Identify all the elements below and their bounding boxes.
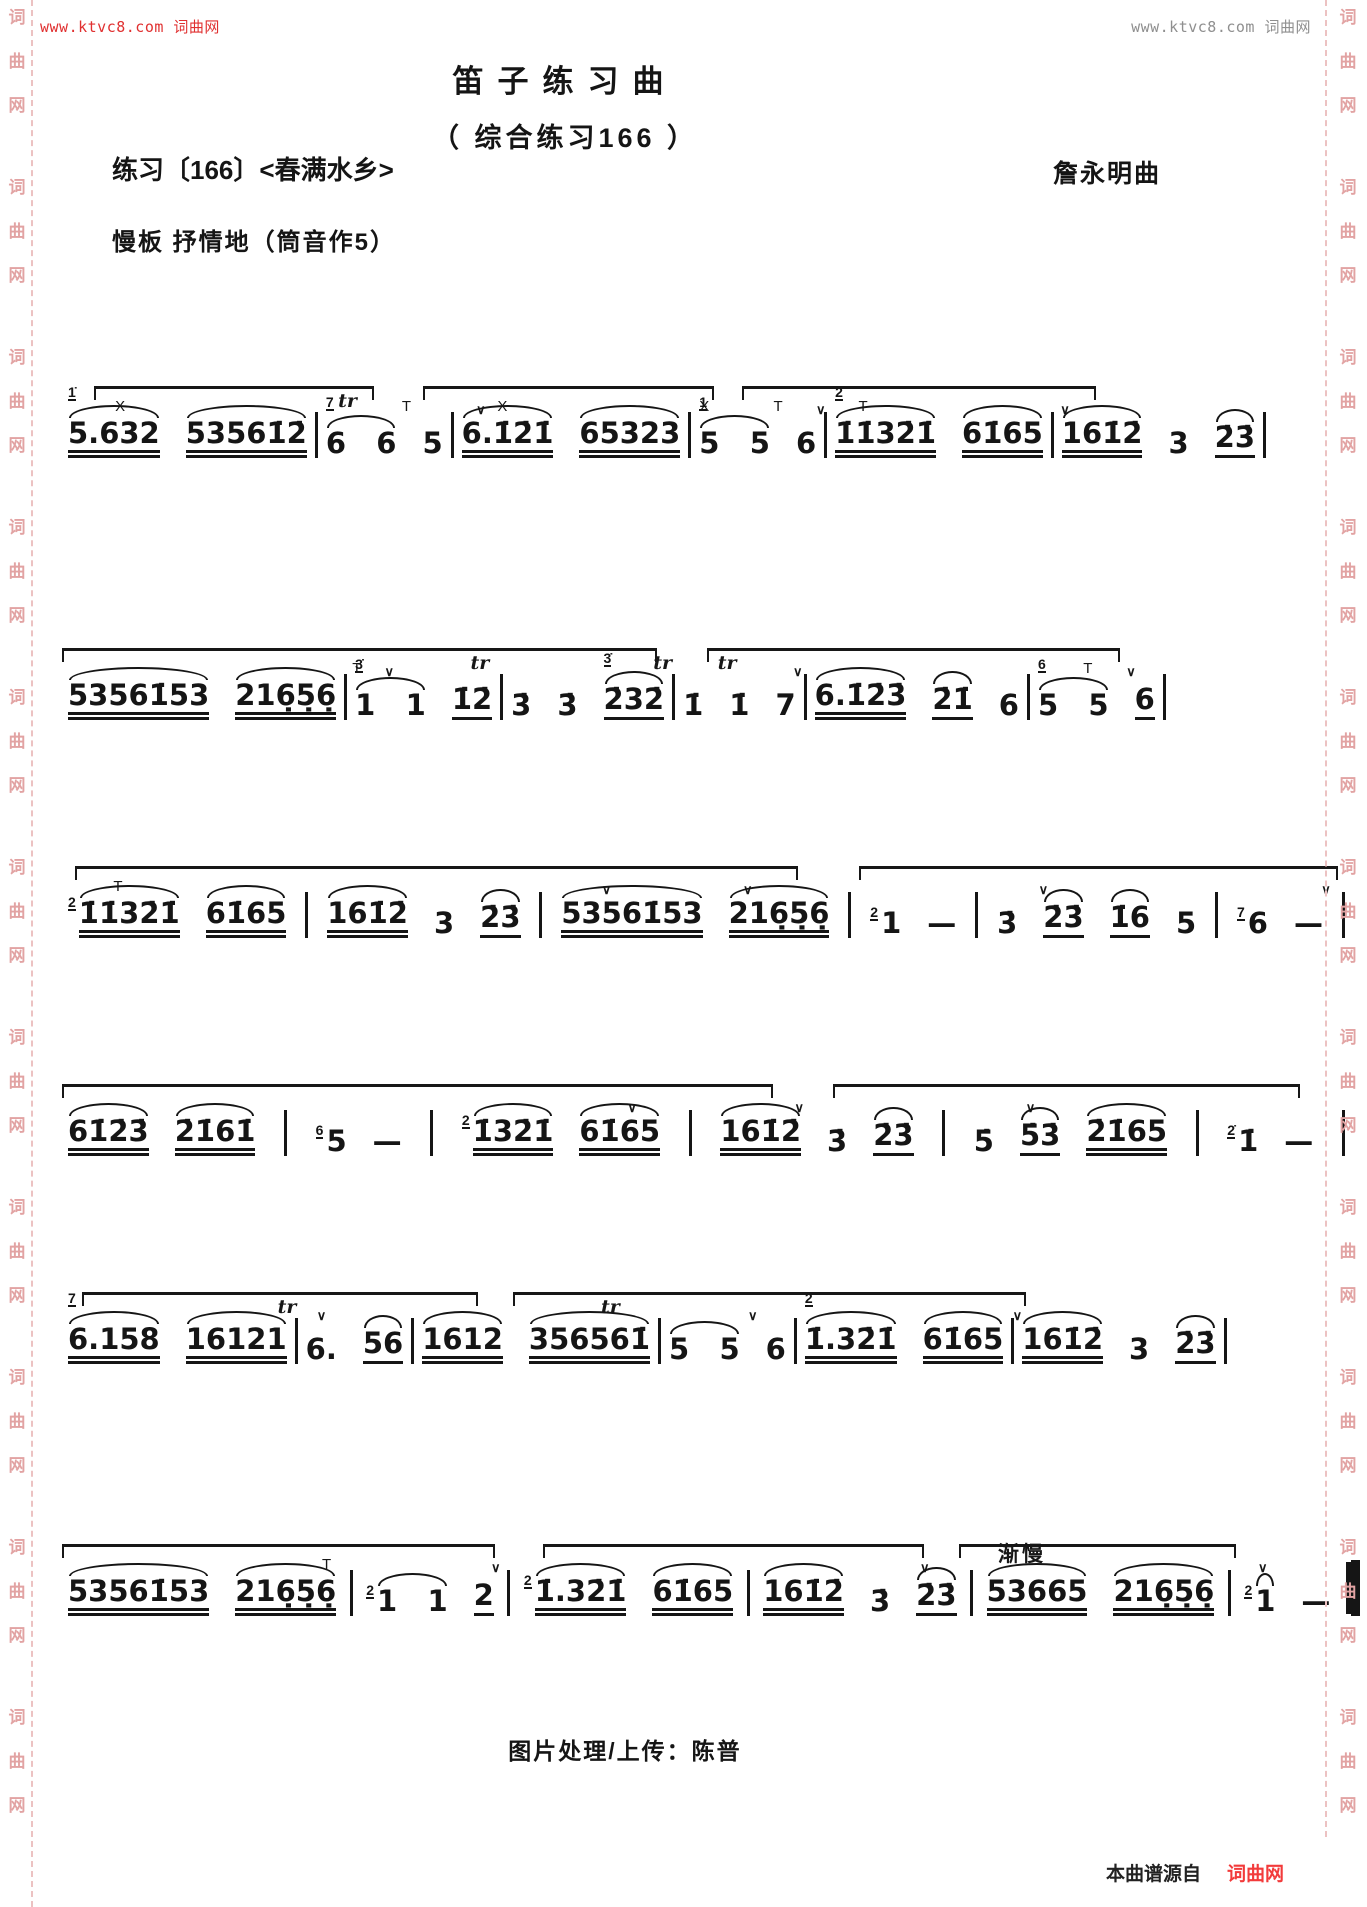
note-digits: 5.632	[68, 418, 160, 458]
phrase-line	[423, 386, 714, 400]
watermark-group: 词曲网	[9, 1526, 26, 1658]
note-digits: 6.1̇2̇1̇	[462, 418, 554, 458]
phrase-line	[62, 1084, 773, 1098]
note-digits: 2̇3̇	[1215, 422, 1255, 458]
note-digits: 2̇3̇	[916, 1580, 956, 1616]
measure: 65 56	[1032, 672, 1161, 720]
watermark-char: 曲	[1340, 210, 1357, 254]
note-group: 161̇2̇	[1062, 418, 1143, 458]
watermark-char: 词	[9, 0, 26, 40]
watermark-group: 词曲网	[9, 1356, 26, 1488]
note-group: 1̇5.632	[68, 400, 160, 458]
barline	[305, 892, 308, 938]
note-group: 2̇1̇	[932, 684, 972, 720]
note-group: 3̇	[557, 690, 577, 720]
note-group: —	[927, 908, 956, 938]
grace-note: 2	[462, 1113, 470, 1129]
note-digits: 6 6	[326, 428, 397, 458]
watermark-group: 词曲网	[1340, 506, 1357, 638]
note-digits: 1̇1̇32̇1̇	[79, 898, 180, 938]
note-group: 61̇65	[652, 1576, 733, 1616]
score-line: T∨∨渐慢∨53561̇53216̣5̣6̣21 1221̇.32̇1̇61̇6…	[62, 1536, 1362, 1616]
note-group: 216̣5̣6̣	[1113, 1576, 1214, 1616]
watermark-char: 网	[9, 1104, 26, 1148]
note-digits: 3̇	[997, 908, 1017, 938]
watermark-char: 词	[9, 676, 26, 720]
note-digits: 1̇.32̇1̇	[535, 1576, 627, 1616]
note-group: 161̇2̇	[1022, 1324, 1103, 1364]
note-group: 1̇6	[1110, 902, 1150, 938]
grace-note: 1̇	[68, 385, 76, 401]
watermark-char: 曲	[9, 40, 26, 84]
note-group: 1̇	[729, 690, 749, 720]
note-digits: 5	[422, 428, 442, 458]
measure: 1̇5.63253561̇2̇	[62, 400, 313, 458]
note-group: 21	[870, 908, 901, 938]
note-group: 3̇	[870, 1586, 890, 1616]
barline	[672, 674, 675, 720]
watermark-group: 词曲网	[1340, 676, 1357, 808]
barline	[1228, 1570, 1231, 1616]
note-group: 56	[363, 1328, 403, 1364]
measure: 21̇.32̇1̇61̇65	[518, 1576, 739, 1616]
site-watermark-top-left: www.ktvc8.com 词曲网	[40, 16, 220, 37]
measure: 76 65	[320, 410, 449, 458]
note-digits: 53561̇53	[68, 1576, 209, 1616]
page-title: 笛子练习曲	[0, 56, 1130, 101]
note-group: 161̇2̇	[327, 898, 408, 938]
measure: 61̇2̇3̇2̇1̇61̇	[62, 1116, 261, 1156]
note-digits: 216̣5̣6̣	[235, 680, 336, 720]
site-watermark-top-right: www.ktvc8.com 词曲网	[1131, 16, 1311, 37]
note-digits: 61̇65	[206, 898, 287, 938]
note-group: 6	[999, 690, 1019, 720]
score-line: ∨∨∨61̇2̇3̇2̇1̇61̇65—21̇32̇1̇61̇65161̇2̇3…	[62, 1076, 1347, 1156]
note-digits: 161̇2̇	[763, 1576, 844, 1616]
watermark-char: 词	[1340, 0, 1357, 40]
watermark-char: 词	[1340, 676, 1357, 720]
phrase-line	[742, 386, 1096, 400]
measure: 161̇2̇3̇2̇3̇	[757, 1576, 962, 1616]
note-group: 61̇65	[923, 1324, 1004, 1364]
note-digits: 5̇	[974, 1126, 994, 1156]
watermark-char: 词	[9, 506, 26, 550]
grace-note: 6	[1038, 657, 1046, 673]
watermark-char: 网	[9, 1614, 26, 1658]
note-group: 6	[1135, 684, 1155, 720]
measure: 53561̇53216̣5̣6̣	[62, 1576, 342, 1616]
note-digits: 161̇2̇	[720, 1116, 801, 1156]
note-group: 2̇3̇	[916, 1580, 956, 1616]
barline	[295, 1318, 298, 1364]
note-group: 21̇32̇1̇	[462, 1116, 554, 1156]
watermark-group: 词曲网	[1340, 1526, 1357, 1658]
watermark-char: 曲	[9, 210, 26, 254]
grace-note: 2̇	[1227, 1123, 1235, 1139]
score-line: T∨trtrtr∨T∨53561̇53216̣5̣6̣3̇1 11̇2̇3̇3̇…	[62, 640, 1137, 720]
barline	[539, 892, 542, 938]
phrase-line	[833, 1084, 1300, 1098]
watermark-char: 曲	[1340, 550, 1357, 594]
barline	[500, 674, 503, 720]
tempo-marking: 慢板 抒情地（筒音作5）	[112, 222, 396, 257]
measure: 161̇2̇3̇2̇3̇	[714, 1116, 919, 1156]
note-group: 76	[1237, 908, 1268, 938]
grace-note: 2	[870, 905, 878, 921]
note-digits: 61̇65	[923, 1324, 1004, 1364]
note-digits: 61̇65	[579, 1116, 660, 1156]
watermark-char: 网	[1340, 594, 1357, 638]
note-group: 3	[1129, 1334, 1149, 1364]
score-line: XtrT∨XXT∨T∨1̇5.63253561̇2̇76 656.1̇2̇1̇6…	[62, 378, 1124, 458]
note-digits: 216̣5̣6̣	[1113, 1576, 1214, 1616]
measure-row: 53561̇53216̣5̣6̣3̇1 11̇2̇3̇3̇3̇2̇32̇1̇1̇…	[62, 666, 1137, 720]
note-group: 2̇3̇	[1175, 1328, 1215, 1364]
note-group: 3̇	[997, 908, 1017, 938]
measure: 2̇1̇—	[1221, 1126, 1319, 1156]
measure: 21 12	[360, 1580, 500, 1616]
note-digits: 1̇	[729, 690, 749, 720]
note-group: 1̇	[683, 690, 703, 720]
right-watermark-column: 词曲网词曲网词曲网词曲网词曲网词曲网词曲网词曲网词曲网词曲网词曲网	[1335, 0, 1361, 1907]
watermark-group: 词曲网	[1340, 1356, 1357, 1488]
watermark-char: 曲	[1340, 380, 1357, 424]
watermark-char: 词	[1340, 1356, 1357, 1400]
note-group: —	[1284, 1126, 1313, 1156]
watermark-char: 词	[1340, 336, 1357, 380]
note-digits: 6.	[306, 1334, 337, 1364]
measure-row: 21̇1̇32̇1̇61̇65161̇2̇32̇3̇53561̇53216̣5̣…	[62, 892, 1347, 938]
watermark-char: 曲	[1340, 1570, 1357, 1614]
measure: 53561̇53216̣5̣6̣	[555, 898, 835, 938]
barline	[689, 1110, 692, 1156]
barline	[1263, 412, 1266, 458]
note-group: 21 1	[366, 1586, 447, 1616]
note-group: 53665	[987, 1576, 1088, 1616]
note-group: 53561̇2̇	[186, 418, 307, 458]
note-digits: 1̇	[1238, 1126, 1258, 1156]
measure: 53561̇53216̣5̣6̣	[62, 680, 342, 720]
measure: 21—	[1238, 1586, 1336, 1616]
note-digits: 6	[999, 690, 1019, 720]
note-digits: 6	[766, 1334, 786, 1364]
note-group: 6.1̇2̇1̇	[462, 418, 554, 458]
note-digits: 1̇32̇1̇	[473, 1116, 554, 1156]
measure: 6.56	[300, 1328, 410, 1364]
watermark-char: 词	[1340, 506, 1357, 550]
note-group: 76.158	[68, 1306, 160, 1364]
note-digits: 61̇65	[652, 1576, 733, 1616]
watermark-char: 网	[1340, 1784, 1357, 1828]
watermark-char: 曲	[9, 380, 26, 424]
note-group: 15 5	[699, 410, 770, 458]
measure: 3̇3̇3̇2̇32̇	[505, 666, 670, 720]
note-digits: 1̇	[683, 690, 703, 720]
note-digits: 216̣5̣6̣	[729, 898, 830, 938]
phrase-line	[513, 1292, 1027, 1306]
note-group: 21̇.32̇1̇	[805, 1306, 897, 1364]
watermark-char: 词	[9, 336, 26, 380]
watermark-char: 词	[1340, 846, 1357, 890]
note-digits: 6.158	[68, 1324, 160, 1364]
watermark-char: 网	[1340, 934, 1357, 978]
source-attribution-box: 本曲谱源自 词曲网	[1092, 1838, 1367, 1907]
barline	[430, 1110, 433, 1156]
note-group: 65	[316, 1126, 347, 1156]
note-digits: 6	[1135, 684, 1155, 720]
note-group: 2̇1̇65	[1086, 1116, 1167, 1156]
grace-note: 2	[524, 1573, 532, 1589]
watermark-char: 网	[1340, 1444, 1357, 1488]
watermark-char: 词	[9, 1016, 26, 1060]
measure: 161̇2̇32̇3̇	[1056, 418, 1261, 458]
phrase-line	[62, 1544, 495, 1558]
watermark-char: 词	[1340, 1696, 1357, 1740]
note-digits: 7	[775, 690, 795, 720]
note-digits: 5̇3̇	[1020, 1120, 1060, 1156]
note-group: 2̇3̇	[1215, 422, 1255, 458]
barline	[794, 1318, 797, 1364]
note-group: 2̇3̇	[873, 1120, 913, 1156]
measure: 1̇1̇7	[677, 690, 802, 720]
watermark-char: 曲	[9, 720, 26, 764]
watermark-char: 网	[9, 1274, 26, 1318]
measure: 21̇32̇1̇61̇65	[456, 1116, 666, 1156]
note-group: 21	[1244, 1586, 1275, 1616]
note-digits: 65323	[579, 418, 680, 458]
watermark-char: 词	[1340, 1526, 1357, 1570]
watermark-char: 词	[9, 1696, 26, 1740]
watermark-char: 词	[9, 1186, 26, 1230]
note-digits: 3	[1129, 1334, 1149, 1364]
note-digits: 56	[363, 1328, 403, 1364]
note-group: 1̇2̇	[452, 684, 492, 720]
note-group: 216̣5̣6̣	[729, 898, 830, 938]
watermark-char: 曲	[9, 1230, 26, 1274]
watermark-char: 曲	[9, 1400, 26, 1444]
grace-note: 6	[316, 1123, 324, 1139]
note-digits: 53561̇53	[68, 680, 209, 720]
grace-note: 2	[366, 1583, 374, 1599]
right-watermark-divider	[1325, 0, 1327, 1907]
watermark-group: 词曲网	[1340, 1186, 1357, 1318]
note-group: 5̇3̇	[1020, 1120, 1060, 1156]
watermark-group: 词曲网	[1340, 846, 1357, 978]
measure: 21̇.32̇1̇61̇65	[799, 1306, 1009, 1364]
note-group: 161̇2̇	[763, 1576, 844, 1616]
watermark-group: 词曲网	[1340, 336, 1357, 468]
watermark-char: 曲	[9, 1060, 26, 1104]
grace-note: 1	[699, 395, 707, 411]
watermark-group: 词曲网	[9, 676, 26, 808]
note-digits: —	[1294, 908, 1323, 938]
left-watermark-column: 词曲网词曲网词曲网词曲网词曲网词曲网词曲网词曲网词曲网词曲网词曲网	[4, 0, 30, 1907]
note-digits: 1	[881, 908, 901, 938]
left-watermark-divider	[31, 0, 33, 1907]
note-digits: 3̇	[870, 1586, 890, 1616]
note-digits: 356561̇	[529, 1324, 650, 1364]
watermark-char: 网	[9, 84, 26, 128]
note-group: 1612	[422, 1324, 503, 1364]
note-group: 216̣5̣6̣	[235, 680, 336, 720]
barline	[1163, 674, 1166, 720]
watermark-char: 网	[9, 424, 26, 468]
note-group: 2̇1̇61̇	[175, 1116, 256, 1156]
watermark-group: 词曲网	[1340, 1016, 1357, 1148]
watermark-char: 网	[1340, 254, 1357, 298]
grace-note: 3̇	[604, 651, 612, 667]
note-digits: 1 1	[355, 690, 426, 720]
barline	[1215, 892, 1218, 938]
note-digits: 53561̇2̇	[186, 418, 307, 458]
note-digits: 3̇	[827, 1126, 847, 1156]
watermark-group: 词曲网	[9, 1696, 26, 1828]
note-digits: 2̇3̇	[1175, 1328, 1215, 1364]
watermark-char: 曲	[1340, 1740, 1357, 1784]
note-digits: 3	[1168, 428, 1188, 458]
barline	[284, 1110, 287, 1156]
barline	[350, 1570, 353, 1616]
measure: 3̇1 11̇2̇	[349, 672, 498, 720]
watermark-char: 曲	[1340, 1060, 1357, 1104]
watermark-char: 词	[1340, 1016, 1357, 1060]
note-group: 356561̇	[529, 1324, 650, 1364]
watermark-char: 网	[9, 1444, 26, 1488]
note-digits: 1̇6	[1110, 902, 1150, 938]
watermark-char: 曲	[9, 1740, 26, 1784]
barline	[1027, 674, 1030, 720]
note-digits: 216̣5̣6̣	[235, 1576, 336, 1616]
note-digits: 53665	[987, 1576, 1088, 1616]
barline	[507, 1570, 510, 1616]
score-line: T∨∨∨∨21̇1̇32̇1̇61̇65161̇2̇32̇3̇53561̇532…	[62, 858, 1347, 938]
note-group: 65323	[579, 418, 680, 458]
note-group: 3̇	[511, 690, 531, 720]
note-group: 3̇2̇32̇	[604, 666, 665, 720]
note-group: 3̇	[827, 1126, 847, 1156]
measure: 21̇1̇32̇1̇61̇65	[62, 898, 292, 938]
measure: 15 56	[693, 410, 822, 458]
watermark-group: 词曲网	[9, 0, 26, 128]
grace-note: 2	[835, 385, 843, 401]
watermark-char: 曲	[1340, 1400, 1357, 1444]
barline	[747, 1570, 750, 1616]
note-group: 61̇65	[579, 1116, 660, 1156]
note-group: 2̇1̇	[1227, 1126, 1258, 1156]
measure-row: 76.158161216.561612356561̇5 5621̇.32̇1̇6…	[62, 1306, 1042, 1364]
note-digits: 2	[474, 1580, 494, 1616]
note-group: 61̇65	[962, 418, 1043, 458]
note-digits: 161̇2̇	[1062, 418, 1143, 458]
note-digits: 2̇1̇61̇	[175, 1116, 256, 1156]
measure-row: 53561̇53216̣5̣6̣21 1221̇.32̇1̇61̇65161̇2…	[62, 1560, 1362, 1616]
watermark-char: 网	[1340, 764, 1357, 808]
barline	[1224, 1318, 1227, 1364]
note-digits: 3̇	[511, 690, 531, 720]
watermark-char: 词	[9, 166, 26, 210]
phrase-line	[75, 866, 799, 880]
watermark-char: 词	[1340, 1186, 1357, 1230]
watermark-char: 网	[9, 1784, 26, 1828]
note-digits: —	[1284, 1126, 1313, 1156]
phrase-line	[859, 866, 1338, 880]
watermark-char: 词	[1340, 166, 1357, 210]
note-digits: 1̇1̇32̇1̇	[835, 418, 936, 458]
note-group: 5	[422, 428, 442, 458]
barline	[1051, 412, 1054, 458]
note-group: 3̇1 1	[355, 672, 426, 720]
note-group: 65 5	[1038, 672, 1109, 720]
note-digits: 61̇2̇3̇	[68, 1116, 149, 1156]
watermark-char: 网	[1340, 1614, 1357, 1658]
barline	[1196, 1110, 1199, 1156]
grace-note: 7	[326, 395, 334, 411]
watermark-char: 曲	[1340, 1230, 1357, 1274]
composer-credit: 詹永明曲	[1053, 154, 1161, 190]
watermark-group: 词曲网	[1340, 0, 1357, 128]
watermark-group: 词曲网	[1340, 1696, 1357, 1828]
phrase-line	[543, 1544, 924, 1558]
barline	[411, 1318, 414, 1364]
note-digits: 61̇65	[962, 418, 1043, 458]
note-group: 21̇1̇32̇1̇	[835, 400, 936, 458]
grace-note: 7	[68, 1291, 76, 1307]
note-group: 216̣5̣6̣	[235, 1576, 336, 1616]
barline	[658, 1318, 661, 1364]
note-group: 76 6	[326, 410, 397, 458]
note-group: 61̇65	[206, 898, 287, 938]
note-digits: 2̇3̇	[1043, 902, 1083, 938]
note-digits: 2̇32̇	[604, 684, 665, 720]
watermark-char: 网	[9, 934, 26, 978]
grace-note: 7	[1237, 905, 1245, 921]
watermark-char: 网	[1340, 1274, 1357, 1318]
watermark-group: 词曲网	[9, 166, 26, 298]
note-digits: 1	[1255, 1586, 1275, 1616]
note-digits: 5	[326, 1126, 346, 1156]
measure-row: 61̇2̇3̇2̇1̇61̇65—21̇32̇1̇61̇65161̇2̇3̇2̇…	[62, 1110, 1347, 1156]
note-digits: 2̇3̇	[480, 902, 520, 938]
grace-note: 3̇	[355, 657, 363, 673]
barline	[970, 1570, 973, 1616]
note-group: 16121	[186, 1324, 287, 1364]
watermark-char: 曲	[9, 1570, 26, 1614]
watermark-char: 词	[9, 1356, 26, 1400]
watermark-char: 网	[9, 594, 26, 638]
measure: 65—	[310, 1126, 408, 1156]
barline	[975, 892, 978, 938]
score-line: tr∨tr∨∨76.158161216.561612356561̇5 5621̇…	[62, 1284, 1042, 1364]
watermark-group: 词曲网	[9, 506, 26, 638]
measure: 5̇5̇3̇2̇1̇65	[968, 1116, 1173, 1156]
note-digits: 5 5	[699, 428, 770, 458]
note-digits: 3	[434, 908, 454, 938]
note-group: 53561̇53	[68, 1576, 209, 1616]
measure: 6.1̇2̇1̇65323	[456, 418, 687, 458]
watermark-group: 词曲网	[9, 846, 26, 978]
note-group: 21̇.32̇1̇	[524, 1576, 627, 1616]
watermark-group: 词曲网	[9, 1016, 26, 1148]
measure-row: 1̇5.63253561̇2̇76 656.1̇2̇1̇6532315 5621…	[62, 400, 1124, 458]
measure: 21̇1̇32̇1̇61̇65	[829, 400, 1049, 458]
measure: 3̇2̇3̇1̇65	[991, 902, 1202, 938]
barline	[315, 412, 318, 458]
note-digits: 161̇2̇	[1022, 1324, 1103, 1364]
note-group: 5 5	[669, 1334, 740, 1364]
barline	[848, 892, 851, 938]
note-digits: 5 5	[1038, 690, 1109, 720]
measure: 5 56	[663, 1334, 792, 1364]
